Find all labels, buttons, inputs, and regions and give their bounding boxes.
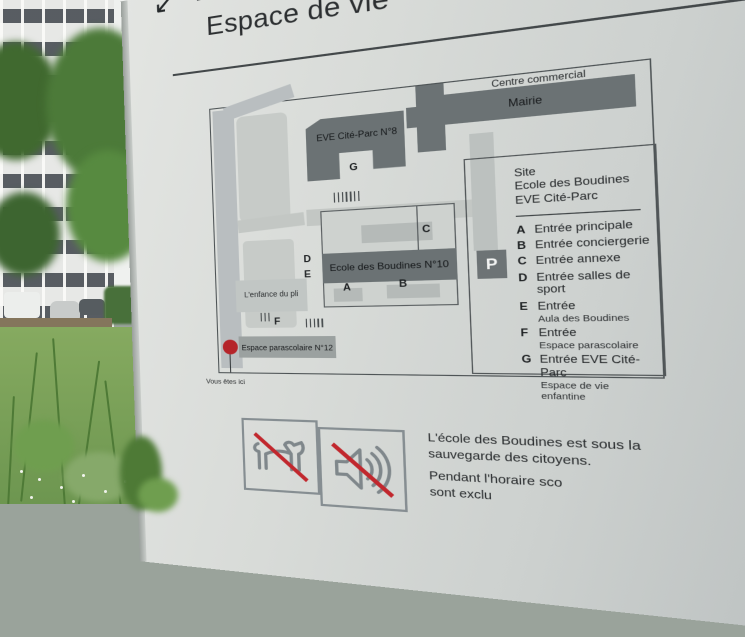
legend-label-text: Entrée conciergerie — [535, 234, 650, 251]
legend-label: Entrée annexe — [536, 252, 622, 268]
direction-arrow-icon: ↙ — [153, 0, 176, 18]
enfance-label: L'enfance du pli — [244, 291, 299, 300]
mairie-label: Mairie — [508, 94, 543, 109]
legend-sublabel: Aula des Boudines — [538, 311, 630, 323]
no-noise-icon — [323, 432, 401, 506]
no-noise-pictogram — [318, 427, 408, 512]
legend-label: Entrée salles de sport — [536, 267, 655, 297]
legend-key: A — [516, 223, 535, 236]
legend-label-text: Entrée EVE Cité-Parc — [540, 353, 641, 378]
legend-key: G — [521, 353, 540, 365]
sign-title: Espace de vie — [206, 0, 390, 43]
legend-label-text: Entrée annexe — [536, 252, 621, 267]
no-dogs-pictogram — [241, 418, 320, 495]
marker-d: D — [303, 253, 311, 264]
legend-label-text: Entrée principale — [534, 218, 633, 235]
ecole-boudines-label: Ecole des Boudines N°10 — [329, 258, 449, 274]
partial-title-glyph — [197, 0, 207, 1]
no-dogs-icon — [247, 423, 315, 490]
marker-g: G — [349, 161, 358, 173]
legend-entry: G Entrée EVE Cité-ParcEspace de vie enfa… — [521, 353, 659, 403]
legend-content: Site Ecole des Boudines EVE Cité-Parc A … — [465, 145, 666, 404]
legend-label: Entrée principale — [534, 218, 633, 236]
legend-entry: C Entrée annexe — [517, 250, 653, 268]
hatch-marks — [261, 313, 272, 322]
sign-panel: ↙ Espace de vie Mairie Centre commercial… — [121, 0, 745, 637]
you-are-here-label: Vous êtes ici — [206, 378, 245, 386]
legend-label: Entrée EVE Cité-ParcEspace de vie enfant… — [540, 353, 660, 403]
legend-rule — [516, 209, 640, 217]
marker-b: B — [399, 278, 408, 290]
legend-key: B — [517, 239, 536, 252]
parked-van — [4, 292, 40, 318]
legend-key: C — [517, 255, 536, 268]
wildflowers — [20, 470, 23, 473]
marker-a: A — [343, 281, 351, 292]
legend-key: F — [520, 327, 539, 339]
enfance-building: L'enfance du pli — [235, 278, 307, 312]
school-site-outline: Ecole des Boudines N°10 A B C — [320, 203, 458, 308]
hatch-marks — [306, 318, 325, 327]
parked-car — [50, 301, 80, 319]
foreground-foliage — [14, 420, 74, 472]
parked-car-dark — [79, 299, 105, 315]
parascolaire-label: Espace parascolaire N°12 — [242, 345, 334, 353]
parascolaire-building: Espace parascolaire N°12 — [239, 336, 337, 358]
legend-entry: D Entrée salles de sport — [518, 267, 655, 297]
legend-sublabel: Espace parascolaire — [539, 339, 639, 350]
marker-f: F — [274, 316, 281, 327]
legend-key: E — [519, 300, 538, 312]
legend-label-text: Entrée — [538, 326, 576, 338]
legend-box: Site Ecole des Boudines EVE Cité-Parc A … — [464, 144, 667, 377]
hatch-marks — [334, 191, 361, 203]
notice-line: sont exclu — [429, 485, 492, 503]
legend-label-text: Entrée salles de sport — [536, 268, 631, 296]
legend-label-text: Entrée — [537, 299, 575, 312]
legend-key: D — [518, 271, 537, 284]
eve-cite-parc-label: EVE Cité-Parc N°8 — [305, 111, 404, 145]
legend-label: EntréeEspace parascolaire — [538, 326, 638, 351]
ecole-boudines-building: Ecole des Boudines N°10 — [322, 248, 458, 283]
legend-label: EntréeAula des Boudines — [537, 298, 629, 324]
site-map: Mairie Centre commercial EVE Cité-Parc N… — [209, 58, 665, 378]
you-are-here-dot — [223, 340, 238, 355]
legend-label: Entrée conciergerie — [535, 234, 650, 252]
legend-entry: B Entrée conciergerie — [517, 234, 653, 253]
legend-entry: E EntréeAula des Boudines — [519, 297, 656, 323]
marker-c: C — [422, 223, 431, 235]
foreground-plant — [138, 478, 178, 512]
legend-entry: F EntréeEspace parascolaire — [520, 326, 657, 351]
legend-sublabel: Espace de vie enfantine — [541, 379, 660, 403]
map-park-area — [236, 112, 291, 223]
site-small-building — [387, 283, 441, 298]
